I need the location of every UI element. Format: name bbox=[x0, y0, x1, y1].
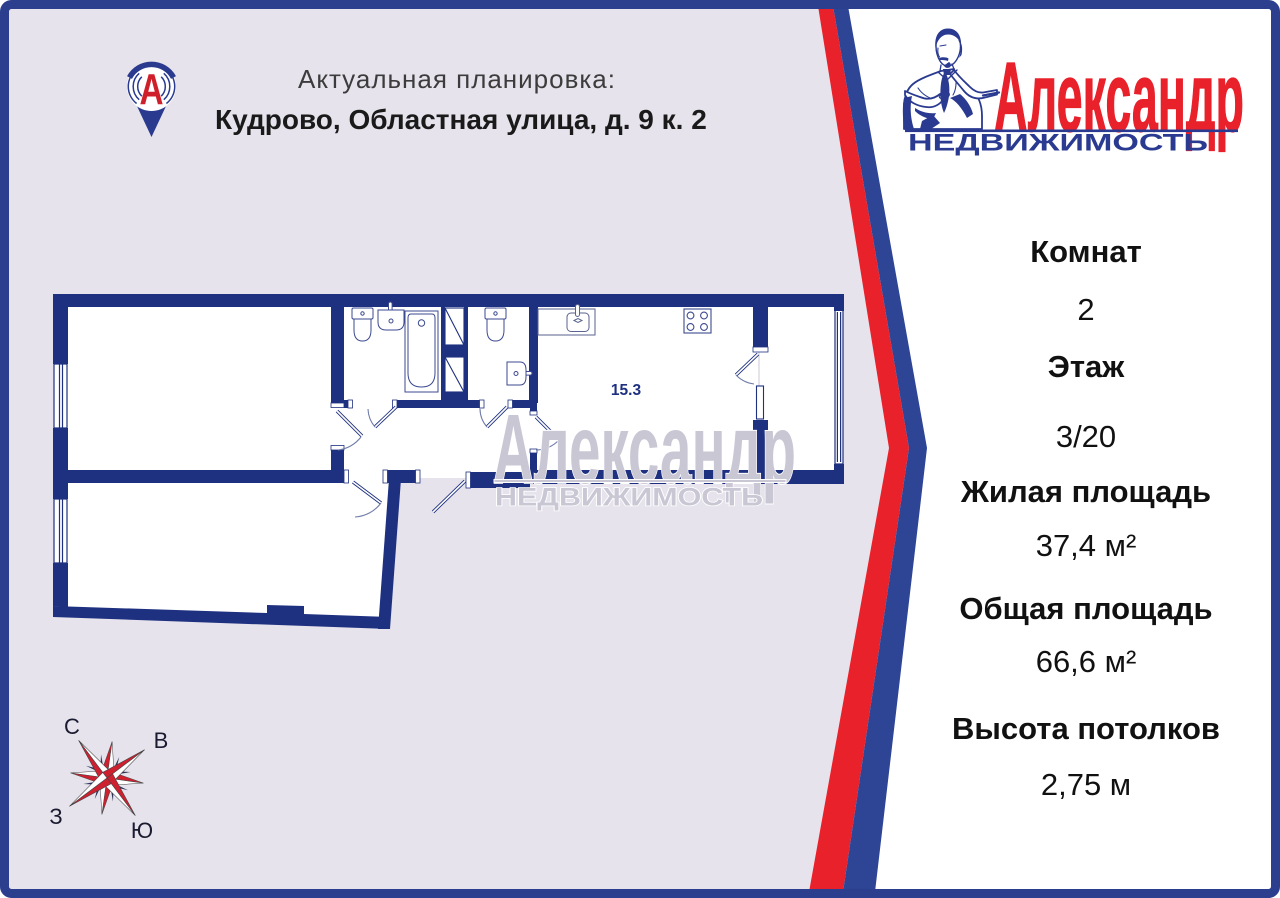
svg-text:3/20: 3/20 bbox=[1056, 419, 1116, 454]
svg-text:2,75 м: 2,75 м bbox=[1041, 767, 1131, 802]
svg-text:А: А bbox=[140, 65, 164, 114]
svg-text:Кудрово, Областная улица, д. 9: Кудрово, Областная улица, д. 9 к. 2 bbox=[215, 104, 707, 135]
svg-text:Ю: Ю bbox=[131, 818, 153, 843]
svg-text:С: С bbox=[64, 714, 80, 739]
svg-text:2: 2 bbox=[1077, 292, 1094, 327]
svg-text:З: З bbox=[49, 804, 62, 829]
svg-text:Комнат: Комнат bbox=[1030, 234, 1142, 269]
svg-text:В: В bbox=[154, 728, 169, 753]
svg-text:Этаж: Этаж bbox=[1048, 349, 1125, 384]
svg-text:Актуальная планировка:: Актуальная планировка: bbox=[298, 64, 615, 94]
svg-text:Жилая площадь: Жилая площадь bbox=[960, 474, 1211, 509]
svg-text:НЕДВИЖИМОСТЬ: НЕДВИЖИМОСТЬ bbox=[495, 484, 763, 512]
svg-text:Высота потолков: Высота потолков bbox=[952, 711, 1220, 746]
svg-text:37,4 м²: 37,4 м² bbox=[1036, 528, 1137, 563]
svg-text:НЕДВИЖИМОСТЬ: НЕДВИЖИМОСТЬ bbox=[908, 130, 1208, 157]
svg-text:66,6 м²: 66,6 м² bbox=[1036, 644, 1137, 679]
svg-text:Общая площадь: Общая площадь bbox=[959, 591, 1212, 626]
